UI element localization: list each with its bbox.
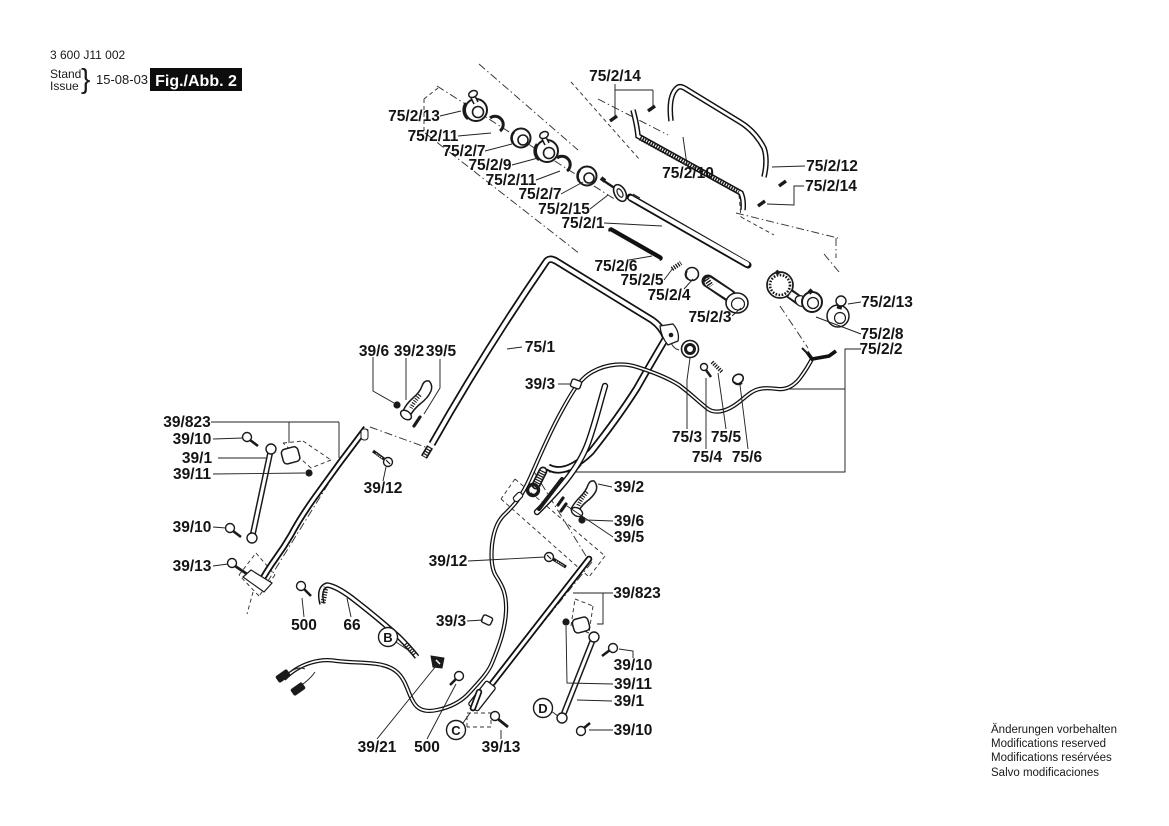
svg-text:75/4: 75/4 [692,449,723,466]
svg-text:75/5: 75/5 [711,429,742,446]
svg-text:Issue: Issue [50,79,79,93]
svg-text:75/2/14: 75/2/14 [589,68,641,85]
svg-text:75/2/2: 75/2/2 [859,341,902,358]
svg-text:39/6: 39/6 [614,513,645,530]
svg-text:39/11: 39/11 [173,466,211,483]
svg-text:500: 500 [291,617,317,634]
svg-text:75/3: 75/3 [672,429,703,446]
svg-text:39/11: 39/11 [614,676,652,693]
svg-text:39/13: 39/13 [482,739,521,756]
svg-text:Salvo modificaciones: Salvo modificaciones [991,767,1099,779]
svg-text:39/823: 39/823 [613,585,661,602]
svg-text:75/2/13: 75/2/13 [388,108,440,125]
svg-text:66: 66 [343,617,361,634]
svg-text:39/5: 39/5 [614,529,645,546]
svg-text:75/2/12: 75/2/12 [806,158,858,175]
svg-text:39/6: 39/6 [359,343,390,360]
svg-text:D: D [538,701,547,716]
svg-text:39/2: 39/2 [614,479,644,496]
svg-text:39/2: 39/2 [394,343,424,360]
svg-text:39/823: 39/823 [163,414,211,431]
svg-text:39/21: 39/21 [358,739,397,756]
svg-text:75/2/10: 75/2/10 [662,165,714,182]
svg-text:39/10: 39/10 [614,657,653,674]
svg-text:39/3: 39/3 [436,613,467,630]
svg-text:39/10: 39/10 [614,722,653,739]
svg-text:500: 500 [414,739,440,756]
svg-text:75/2/4: 75/2/4 [647,287,690,304]
svg-text:39/10: 39/10 [173,431,212,448]
svg-text:39/1: 39/1 [182,450,213,467]
svg-text:Änderungen vorbehalten: Änderungen vorbehalten [991,724,1117,736]
svg-text:75/2/3: 75/2/3 [688,309,731,326]
svg-text:39/1: 39/1 [614,693,645,710]
svg-text:C: C [451,723,461,738]
svg-text:Fig./Abb. 2: Fig./Abb. 2 [155,73,237,90]
svg-text:39/13: 39/13 [173,558,212,575]
svg-text:3 600 J11 002: 3 600 J11 002 [50,48,126,62]
svg-text:75/1: 75/1 [525,339,556,356]
svg-text:39/12: 39/12 [364,480,403,497]
svg-text:75/2/14: 75/2/14 [805,178,857,195]
svg-text:39/12: 39/12 [429,553,468,570]
svg-text:75/2/13: 75/2/13 [861,294,913,311]
svg-text:Modifications resérvées: Modifications resérvées [991,752,1112,764]
svg-text:39/5: 39/5 [426,343,457,360]
svg-text:}: } [81,63,90,94]
svg-text:B: B [383,630,392,645]
svg-text:75/2/1: 75/2/1 [561,215,604,232]
svg-text:39/3: 39/3 [525,376,556,393]
svg-text:Modifications reserved: Modifications reserved [991,738,1106,750]
svg-text:75/6: 75/6 [732,449,763,466]
svg-text:15-08-03: 15-08-03 [96,72,148,87]
svg-text:39/10: 39/10 [173,519,212,536]
